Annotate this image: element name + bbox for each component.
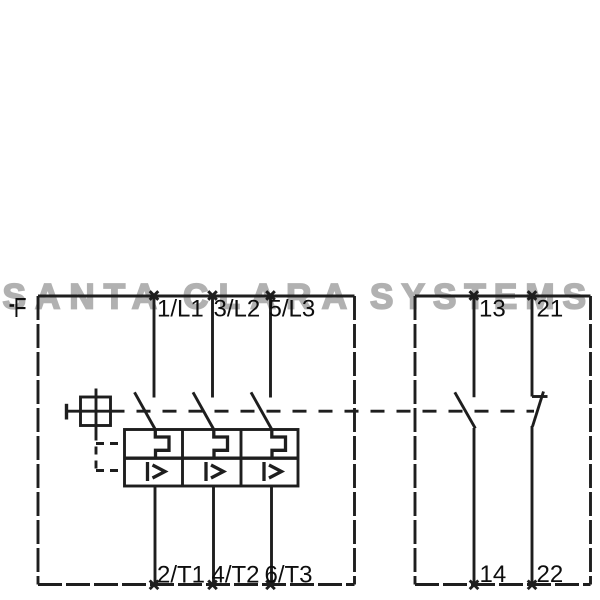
svg-text:3/L2: 3/L2: [214, 296, 261, 323]
svg-text:1/L1: 1/L1: [157, 296, 204, 323]
svg-text:2/T1: 2/T1: [157, 562, 205, 589]
svg-text:6/T3: 6/T3: [265, 562, 313, 589]
svg-text:4/T2: 4/T2: [212, 562, 260, 589]
svg-text:21: 21: [537, 296, 564, 323]
svg-text:13: 13: [479, 296, 506, 323]
svg-text:5/L3: 5/L3: [269, 296, 316, 323]
svg-text:22: 22: [537, 561, 564, 588]
svg-text:14: 14: [480, 561, 507, 588]
svg-text:F: F: [14, 293, 27, 324]
